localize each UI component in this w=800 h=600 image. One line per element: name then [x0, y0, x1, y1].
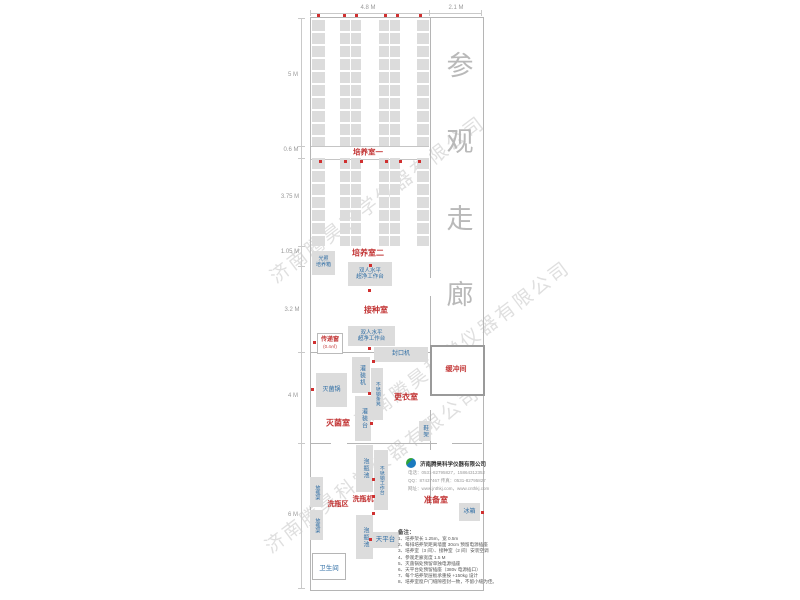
- light-incubator: 光照 培养箱: [312, 251, 335, 275]
- dimension-label-left: 1.05 M: [281, 249, 299, 255]
- bottle-rack-1: 放瓶架: [310, 477, 323, 507]
- shoe-rack: 鞋架: [419, 421, 431, 441]
- filling-table-label: 灌装台: [360, 408, 367, 429]
- clean-bench-2: 双人水平 超净工作台: [348, 326, 395, 346]
- clean-bench-label: 超净工作台: [358, 336, 386, 342]
- filling-machine-label: 灌装机: [358, 365, 365, 386]
- clean-bench-label: 超净工作台: [356, 274, 384, 280]
- culture-rack: [379, 158, 389, 246]
- sealing-machine: 封口机: [374, 347, 428, 362]
- culture-rack: [417, 158, 429, 246]
- pass-through-window: 传递窗 (0.4㎡): [317, 333, 343, 354]
- outlet-dot: [372, 495, 375, 498]
- dimension-tick: [481, 10, 482, 16]
- bottle-rack-label: 放瓶架: [314, 485, 320, 500]
- culture-rack: [379, 20, 389, 146]
- culture-rack: [340, 158, 350, 246]
- culture-rack: [351, 20, 361, 146]
- room-label-changing: 更衣室: [394, 392, 418, 403]
- room-label-buffer: 缓冲间: [446, 364, 467, 374]
- bottle-washer-label: 洗瓶机: [353, 494, 374, 504]
- balance-table: 天平台: [372, 532, 399, 548]
- outlet-dot: [419, 14, 422, 17]
- notes-title: 备注：: [398, 528, 528, 536]
- culture-rack: [390, 158, 400, 246]
- dimension-tick: [310, 10, 311, 16]
- outlet-dot: [368, 289, 371, 292]
- culture-rack: [312, 158, 325, 246]
- soak-pool-1: 泡瓶池: [356, 445, 373, 492]
- corridor-char: 廊: [447, 273, 474, 312]
- company-name: 济南腾昊科学仪器有限公司: [420, 460, 486, 468]
- filling-machine: 灌装机: [352, 357, 370, 393]
- sterilizer-pot: 灭菌锅: [316, 373, 347, 407]
- company-logo-icon: [406, 458, 416, 468]
- dimension-label-left: 5 M: [288, 72, 298, 78]
- dimension-tick: [298, 266, 305, 267]
- corridor-char: 参: [447, 44, 474, 83]
- dimension-label-left: 4 M: [288, 393, 298, 399]
- company-website: 网址：www.jnthkj.com，www.cnthkj.com: [408, 486, 489, 492]
- soak-pool-label: 泡瓶池: [361, 527, 368, 548]
- dimension-tick: [429, 10, 430, 16]
- note-item: 8、培养室窗户门缝隙密封一致，不留小缝为佳。: [398, 579, 528, 585]
- room-label-prep: 准备室: [424, 495, 448, 506]
- dimension-tick: [298, 158, 305, 159]
- outlet-dot: [368, 392, 371, 395]
- dimension-tick: [298, 443, 305, 444]
- dimension-tick: [298, 352, 305, 353]
- fridge-label: 冰箱: [463, 509, 475, 516]
- light-incubator-label: 培养箱: [316, 263, 331, 269]
- company-phone: 电话：0531-82795827，15864312352: [408, 470, 485, 476]
- dimension-label-top: 4.8 M: [360, 5, 375, 11]
- filling-table: 灌装台: [355, 396, 371, 441]
- outlet-dot: [319, 160, 322, 163]
- corridor-wall: [430, 18, 431, 278]
- wall-wash-north: [347, 443, 437, 444]
- dimension-tick: [298, 588, 305, 589]
- fridge: 冰箱: [459, 503, 480, 521]
- outlet-dot: [385, 160, 388, 163]
- soak-pool-label: 泡瓶池: [361, 458, 368, 479]
- notes-block: 备注： 1、培养架长 1.25m，宽 0.5m 2、每排培养架距离墙面 30cm…: [398, 528, 528, 586]
- outlet-dot: [343, 14, 346, 17]
- outlet-dot: [360, 160, 363, 163]
- dimension-tick: [298, 246, 305, 247]
- dimension-tick: [298, 146, 305, 147]
- corridor-char: 走: [447, 197, 474, 236]
- outlet-dot: [399, 160, 402, 163]
- outlet-dot: [396, 14, 399, 17]
- corridor-char: 观: [447, 120, 474, 159]
- toilet-room: 卫生间: [312, 553, 346, 580]
- stainless-bench: 不锈钢条凳: [371, 368, 383, 420]
- dimension-label-left: 6 M: [288, 512, 298, 518]
- culture-rack: [351, 158, 361, 246]
- balance-table-label: 天平台: [376, 536, 396, 543]
- outlet-dot: [418, 160, 421, 163]
- outlet-dot: [372, 478, 375, 481]
- culture-rack: [390, 20, 400, 146]
- dimension-label-top: 2.1 M: [448, 5, 463, 11]
- outlet-dot: [481, 511, 484, 514]
- room-label-sterilization: 灭菌室: [326, 418, 350, 429]
- sealing-machine-label: 封口机: [392, 351, 410, 358]
- outlet-dot: [369, 264, 372, 267]
- dimension-label-left: 3.2 M: [284, 307, 299, 313]
- dimension-label-left: 0.6 M: [283, 147, 298, 153]
- room-label-toilet: 卫生间: [319, 562, 339, 572]
- bottle-rack-2: 放瓶架: [310, 510, 323, 540]
- wall-wash-north: [452, 443, 482, 444]
- room-label-washing-area: 洗瓶区: [328, 499, 349, 509]
- stainless-worktable: 不锈钢工作台: [374, 450, 388, 510]
- dimension-label-left: 3.75 M: [281, 194, 299, 200]
- dimension-line-left: [301, 18, 302, 589]
- bottle-rack-label: 放瓶架: [314, 518, 320, 533]
- outlet-dot: [384, 14, 387, 17]
- corridor-label: 参 观 走 廊: [445, 44, 475, 312]
- company-qq: QQ：87437467 传真：0531-82795827: [408, 478, 486, 484]
- culture-rack: [312, 20, 325, 146]
- wall-wash-north: [311, 443, 331, 444]
- outlet-dot: [313, 341, 316, 344]
- outlet-dot: [311, 388, 314, 391]
- outlet-dot: [317, 14, 320, 17]
- outlet-dot: [370, 422, 373, 425]
- floorplan-canvas: 济南腾昊科学仪器有限公司 济南腾昊科学仪器有限公司 济南腾昊科学仪器有限公司 培…: [0, 0, 800, 600]
- outlet-dot: [369, 538, 372, 541]
- stainless-bench-label: 不锈钢条凳: [374, 382, 380, 406]
- soak-pool-2: 泡瓶池: [356, 515, 373, 559]
- corridor-wall: [430, 296, 431, 345]
- outlet-dot: [372, 360, 375, 363]
- room-label-culture2: 培养室二: [352, 248, 384, 259]
- stainless-worktable-label: 不锈钢工作台: [378, 466, 384, 495]
- room-label-inoculation: 接种室: [364, 305, 388, 316]
- dimension-tick: [298, 18, 305, 19]
- room-label-culture1: 培养室一: [353, 147, 383, 158]
- sterilizer-label: 灭菌锅: [322, 387, 340, 394]
- pass-window-size: (0.4㎡): [323, 344, 337, 349]
- outlet-dot: [355, 14, 358, 17]
- culture-rack: [340, 20, 350, 146]
- culture-rack: [417, 20, 429, 146]
- outlet-dot: [372, 512, 375, 515]
- shoe-rack-label: 鞋架: [422, 425, 428, 438]
- outlet-dot: [368, 347, 371, 350]
- outlet-dot: [344, 160, 347, 163]
